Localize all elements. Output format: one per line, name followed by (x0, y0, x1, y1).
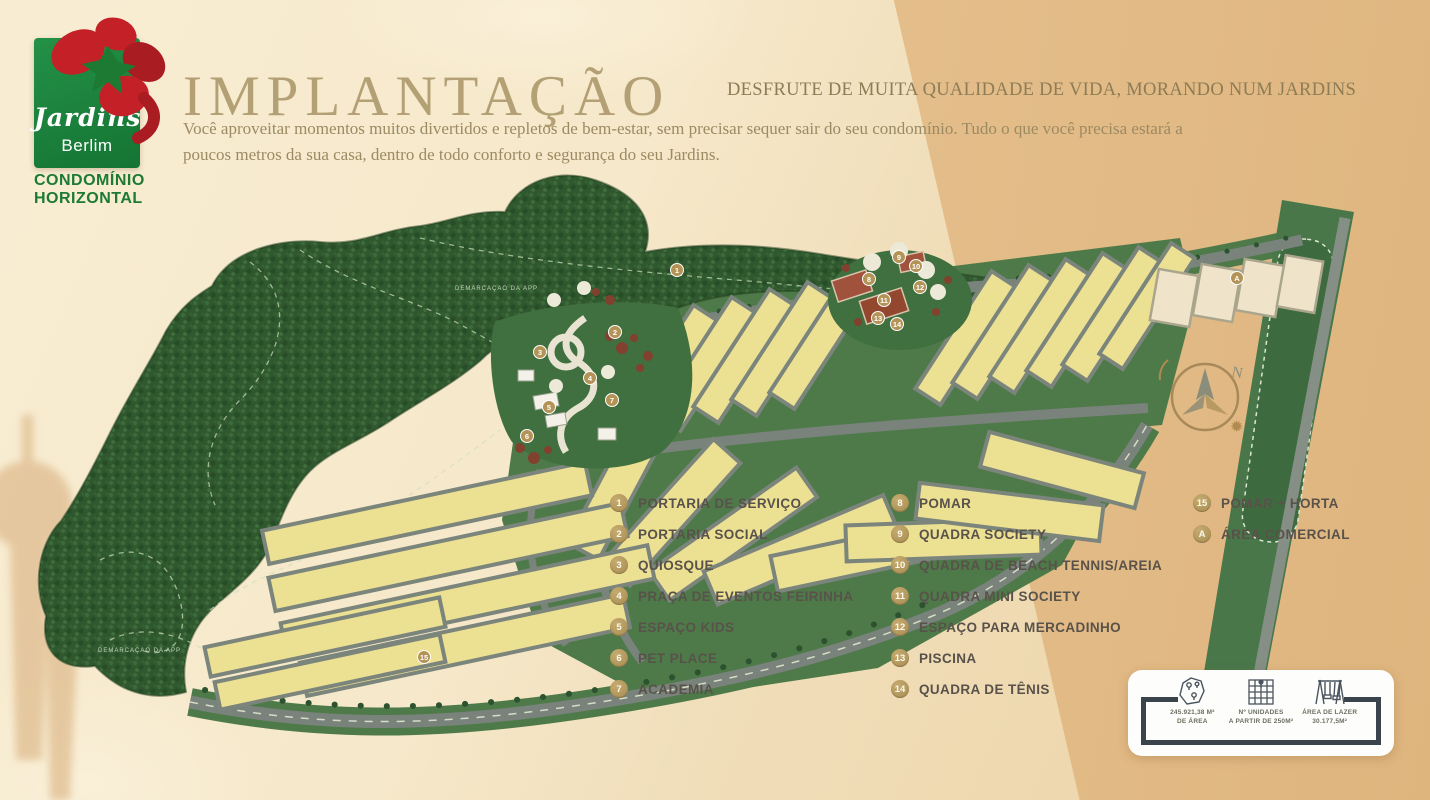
units-grid-icon (1245, 675, 1277, 707)
legend-number-badge: A (1193, 525, 1211, 543)
legend-item: 15POMAR + HORTA (1193, 492, 1350, 514)
stat-total-area: 245.921,38 M² DE ÁREA (1158, 675, 1227, 727)
legend-number-badge: 12 (891, 618, 909, 636)
legend-item: 4PRAÇA DE EVENTOS FEIRINHA (610, 585, 854, 607)
svg-text:13: 13 (874, 314, 882, 323)
intro-line1: Você aproveitar momentos muitos divertid… (183, 116, 1398, 142)
legend-label: QUADRA DE BEACH TENNIS/AREIA (919, 558, 1162, 573)
legend-item: 1PORTARIA DE SERVIÇO (610, 492, 854, 514)
flower-icon (28, 0, 188, 150)
svg-text:1: 1 (675, 266, 679, 275)
svg-text:6: 6 (525, 432, 529, 441)
legend-item: 12ESPAÇO PARA MERCADINHO (891, 616, 1162, 638)
app-demarcation-label: DEMARCAÇÃO DA APP (455, 285, 538, 292)
legend-label: QUIOSQUE (638, 558, 714, 573)
legend-item: 11QUADRA MINI SOCIETY (891, 585, 1162, 607)
legend-label: PORTARIA DE SERVIÇO (638, 496, 801, 511)
legend-item: 6PET PLACE (610, 647, 854, 669)
stat-line: Nº UNIDADES (1227, 709, 1296, 718)
legend-column-3: 15POMAR + HORTA AÁREA COMERCIAL (1193, 492, 1350, 545)
stat-line: A PARTIR DE 250M² (1227, 718, 1296, 727)
legend-column-2: 8POMAR 9QUADRA SOCIETY 10QUADRA DE BEACH… (891, 492, 1162, 700)
stat-leisure-area: ÁREA DE LAZER 30.177,5M² (1295, 675, 1364, 727)
logo-tagline-line1: CONDOMÍNIO (34, 172, 184, 190)
legend-number-badge: 6 (610, 649, 628, 667)
legend-item: 8POMAR (891, 492, 1162, 514)
svg-text:9: 9 (897, 253, 901, 262)
legend-item: 2PORTARIA SOCIAL (610, 523, 854, 545)
legend-number-badge: 4 (610, 587, 628, 605)
svg-text:15: 15 (420, 653, 428, 662)
svg-text:11: 11 (880, 296, 888, 305)
legend-number-badge: 11 (891, 587, 909, 605)
legend-label: PORTARIA SOCIAL (638, 527, 768, 542)
stat-line: DE ÁREA (1158, 718, 1227, 727)
site-area-map-icon (1177, 675, 1207, 707)
compass-north-label: N (1230, 364, 1244, 382)
svg-text:3: 3 (538, 348, 542, 357)
legend-label: QUADRA MINI SOCIETY (919, 589, 1081, 604)
stat-units: Nº UNIDADES A PARTIR DE 250M² (1227, 675, 1296, 727)
legend-label: POMAR + HORTA (1221, 496, 1339, 511)
legend-item: 3QUIOSQUE (610, 554, 854, 576)
legend-item: 14QUADRA DE TÊNIS (891, 678, 1162, 700)
legend-label: PISCINA (919, 651, 977, 666)
playground-swing-icon (1312, 675, 1348, 707)
legend-number-badge: 15 (1193, 494, 1211, 512)
legend-number-badge: 2 (610, 525, 628, 543)
svg-text:2: 2 (613, 328, 617, 337)
app-demarcation-label-2: DEMARCAÇÃO DA APP (98, 647, 181, 654)
legend-number-badge: 8 (891, 494, 909, 512)
legend-number-badge: 10 (891, 556, 909, 574)
legend-number-badge: 1 (610, 494, 628, 512)
svg-text:A: A (1234, 274, 1240, 283)
legend-label: QUADRA DE TÊNIS (919, 682, 1050, 697)
legend-item: 9QUADRA SOCIETY (891, 523, 1162, 545)
legend-number-badge: 14 (891, 680, 909, 698)
stat-line: 30.177,5M² (1295, 718, 1364, 727)
legend-item: 5ESPAÇO KIDS (610, 616, 854, 638)
legend-number-badge: 13 (891, 649, 909, 667)
legend-label: ÁREA COMERCIAL (1221, 527, 1350, 542)
legend-column-1: 1PORTARIA DE SERVIÇO 2PORTARIA SOCIAL 3Q… (610, 492, 854, 700)
svg-text:10: 10 (912, 262, 920, 271)
sun-icon: ✹ (1230, 419, 1243, 436)
legend-number-badge: 3 (610, 556, 628, 574)
legend-label: QUADRA SOCIETY (919, 527, 1046, 542)
legend-label: PET PLACE (638, 651, 717, 666)
logo-tagline: CONDOMÍNIO HORIZONTAL (34, 172, 184, 209)
legend-number-badge: 5 (610, 618, 628, 636)
svg-text:8: 8 (867, 275, 871, 284)
legend-label: ESPAÇO PARA MERCADINHO (919, 620, 1121, 635)
legend-item: 10QUADRA DE BEACH TENNIS/AREIA (891, 554, 1162, 576)
svg-text:12: 12 (916, 283, 924, 292)
intro-line2: poucos metros da sua casa, dentro de tod… (183, 142, 1398, 168)
stat-line: ÁREA DE LAZER (1295, 709, 1364, 718)
page-subtitle: DESFRUTE DE MUITA QUALIDADE DE VIDA, MOR… (727, 80, 1417, 101)
legend-number-badge: 7 (610, 680, 628, 698)
svg-text:7: 7 (610, 396, 614, 405)
stat-line: 245.921,38 M² (1158, 709, 1227, 718)
legend-label: POMAR (919, 496, 971, 511)
legend-number-badge: 9 (891, 525, 909, 543)
legend-item: 13PISCINA (891, 647, 1162, 669)
legend-label: ESPAÇO KIDS (638, 620, 734, 635)
svg-text:14: 14 (893, 320, 902, 329)
legend-label: ACADEMIA (638, 682, 714, 697)
svg-text:5: 5 (547, 403, 551, 412)
legend-label: PRAÇA DE EVENTOS FEIRINHA (638, 589, 854, 604)
intro-paragraph: Você aproveitar momentos muitos divertid… (183, 116, 1398, 169)
logo-tagline-line2: HORIZONTAL (34, 190, 184, 208)
legend-item: 7ACADEMIA (610, 678, 854, 700)
stats-card: 245.921,38 M² DE ÁREA Nº UNIDADES A PART… (1128, 670, 1394, 756)
legend-item: AÁREA COMERCIAL (1193, 523, 1350, 545)
